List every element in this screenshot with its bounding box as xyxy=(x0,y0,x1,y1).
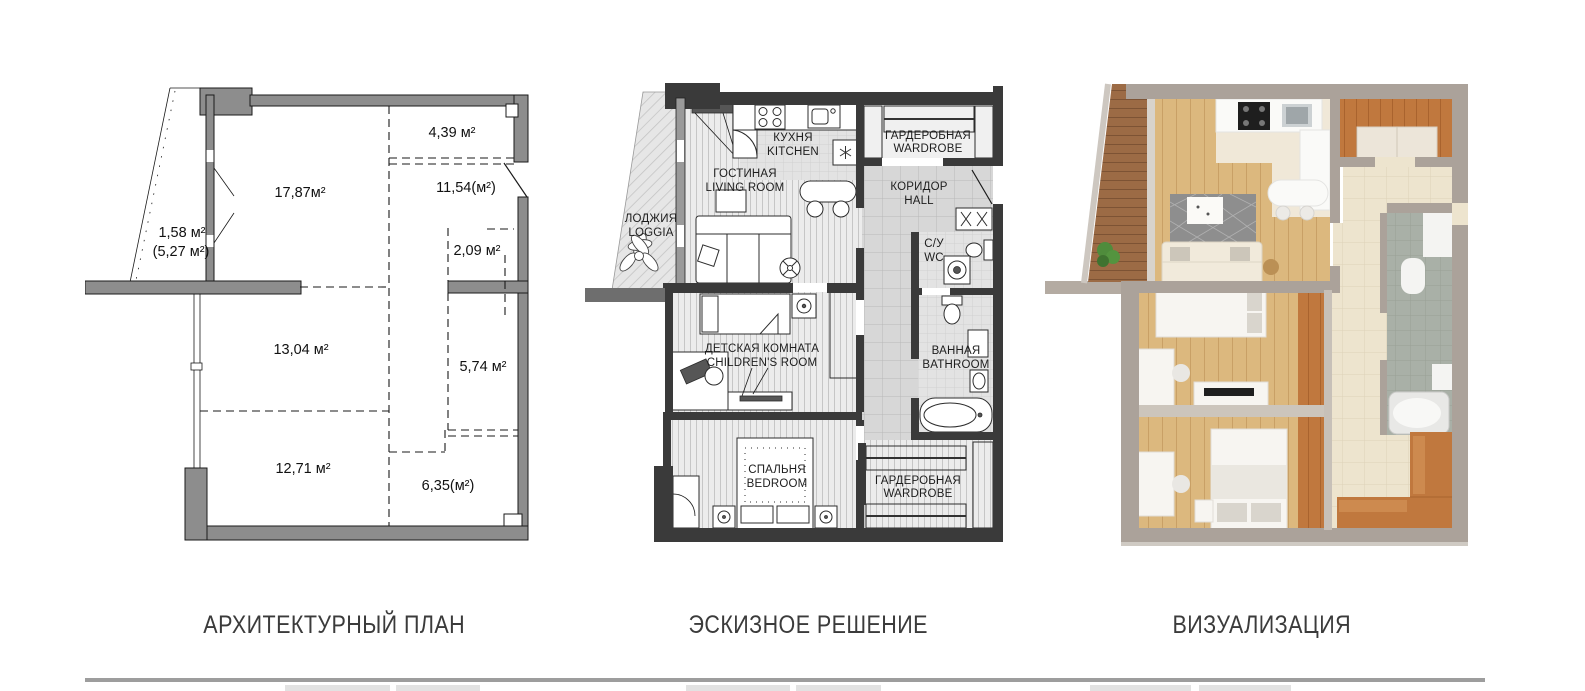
pillow xyxy=(777,506,809,523)
area-room12: 12,71 м² xyxy=(275,461,330,477)
shoe-cabinet xyxy=(956,208,992,230)
label-wardrobe2-ru: ГАРДЕРОБНАЯ xyxy=(875,475,961,487)
tv xyxy=(740,396,782,401)
label-bath-ru: ВАННАЯ xyxy=(932,345,981,357)
corridor-floor xyxy=(862,232,918,450)
stove xyxy=(1238,102,1270,130)
balcony xyxy=(1084,84,1149,283)
coffee-table xyxy=(1187,197,1223,224)
label-bedroom-ru: СПАЛЬНЯ xyxy=(748,464,806,476)
label-wc-ru: С/У xyxy=(924,238,944,250)
label-loggia-en: LOGGIA xyxy=(628,227,673,239)
caption-sketch-solution: ЭСКИЗНОЕ РЕШЕНИЕ xyxy=(648,611,968,640)
pillow xyxy=(1217,503,1247,522)
cabinet xyxy=(1423,213,1453,257)
chair xyxy=(705,367,723,385)
floorplan-visualization xyxy=(1040,78,1472,554)
label-living-ru: ГОСТИНАЯ xyxy=(713,168,777,180)
area-hall: 6,35(м²) xyxy=(422,478,475,494)
label-wardrobe1-ru: ГАРДЕРОБНАЯ xyxy=(885,130,971,142)
chair xyxy=(1172,475,1190,493)
label-kitchen-ru: КУХНЯ xyxy=(773,132,812,144)
toilet xyxy=(966,243,982,257)
bottom-thumbnail xyxy=(285,685,390,691)
dashed-partitions xyxy=(200,106,518,526)
label-wardrobe1-en: WARDROBE xyxy=(894,143,963,155)
chair xyxy=(1172,364,1190,382)
stove xyxy=(755,105,785,129)
area-small-room: 2,09 м² xyxy=(453,243,500,259)
caption-visualization: ВИЗУАЛИЗАЦИЯ xyxy=(1102,611,1422,640)
bottom-divider xyxy=(85,678,1485,682)
toilet xyxy=(1401,258,1425,294)
pillow xyxy=(1230,247,1250,261)
dresser xyxy=(673,476,699,528)
label-living-en: LIVING ROOM xyxy=(706,182,785,194)
bottom-thumbnail xyxy=(686,685,790,691)
pillow xyxy=(741,506,773,523)
stool xyxy=(1300,206,1314,220)
area-bath: 5,74 м² xyxy=(459,359,506,375)
nightstand xyxy=(1195,500,1213,522)
window-wall xyxy=(191,294,202,468)
bottom-thumbnail xyxy=(796,685,881,691)
toilet-tank xyxy=(984,240,993,260)
label-wc-en: WC xyxy=(924,252,944,264)
label-hall-en: HALL xyxy=(904,195,934,207)
window-wall xyxy=(1147,99,1155,281)
wall-openings xyxy=(207,104,528,526)
area-kitchen-total: 11,54(м²) xyxy=(436,180,496,196)
area-kitchen: 4,39 м² xyxy=(428,125,475,141)
toilet xyxy=(944,304,960,324)
sink xyxy=(808,105,840,128)
entry-opening xyxy=(1452,203,1468,225)
washer xyxy=(1432,364,1452,390)
bottom-thumbnail xyxy=(1090,685,1191,691)
area-loggia: 1,58 м² xyxy=(158,225,205,241)
bottom-thumbnail xyxy=(396,685,480,691)
label-childrens-en: CHILDREN'S ROOM xyxy=(707,357,818,369)
page: { "plan1": { "caption": "АРХИТЕКТУРНЫЙ П… xyxy=(0,0,1585,691)
area-living: 17,87м² xyxy=(274,185,325,201)
caption-architectural-plan: АРХИТЕКТУРНЫЙ ПЛАН xyxy=(174,611,494,640)
sofa xyxy=(696,216,791,283)
area-room13: 13,04 м² xyxy=(273,342,328,358)
label-kitchen-en: KITCHEN xyxy=(767,146,819,158)
corridor-floor xyxy=(1332,290,1387,455)
label-bath-en: BATHROOM xyxy=(922,359,989,371)
label-wardrobe2-en: WARDROBE xyxy=(884,488,953,500)
pillow xyxy=(1170,247,1190,261)
round-table xyxy=(1263,259,1279,275)
label-hall-ru: КОРИДОР xyxy=(890,181,947,193)
pillow xyxy=(1247,313,1262,333)
pillow xyxy=(1247,291,1262,311)
loggia-outline xyxy=(128,88,206,292)
floorplan-sketch: ЛОДЖИЯ LOGGIA КУХНЯ KITCHEN ГОСТИНАЯ LIV… xyxy=(585,78,1015,550)
stool xyxy=(1276,206,1290,220)
dining-table xyxy=(1268,180,1328,206)
tv xyxy=(1204,388,1254,396)
pillow xyxy=(1251,503,1281,522)
label-childrens-ru: ДЕТСКАЯ КОМНАТА xyxy=(705,343,819,355)
area-loggia-full: (5,27 м²) xyxy=(153,244,210,260)
fan-symbol xyxy=(780,258,800,278)
floorplan-architectural: 17,87м² 4,39 м² 11,54(м²) 1,58 м² (5,27 … xyxy=(85,78,545,550)
label-bedroom-en: BEDROOM xyxy=(747,478,808,490)
label-loggia-ru: ЛОДЖИЯ xyxy=(625,213,677,225)
pillow xyxy=(702,296,718,332)
living-room xyxy=(1162,194,1262,288)
bottom-thumbnail xyxy=(1199,685,1291,691)
